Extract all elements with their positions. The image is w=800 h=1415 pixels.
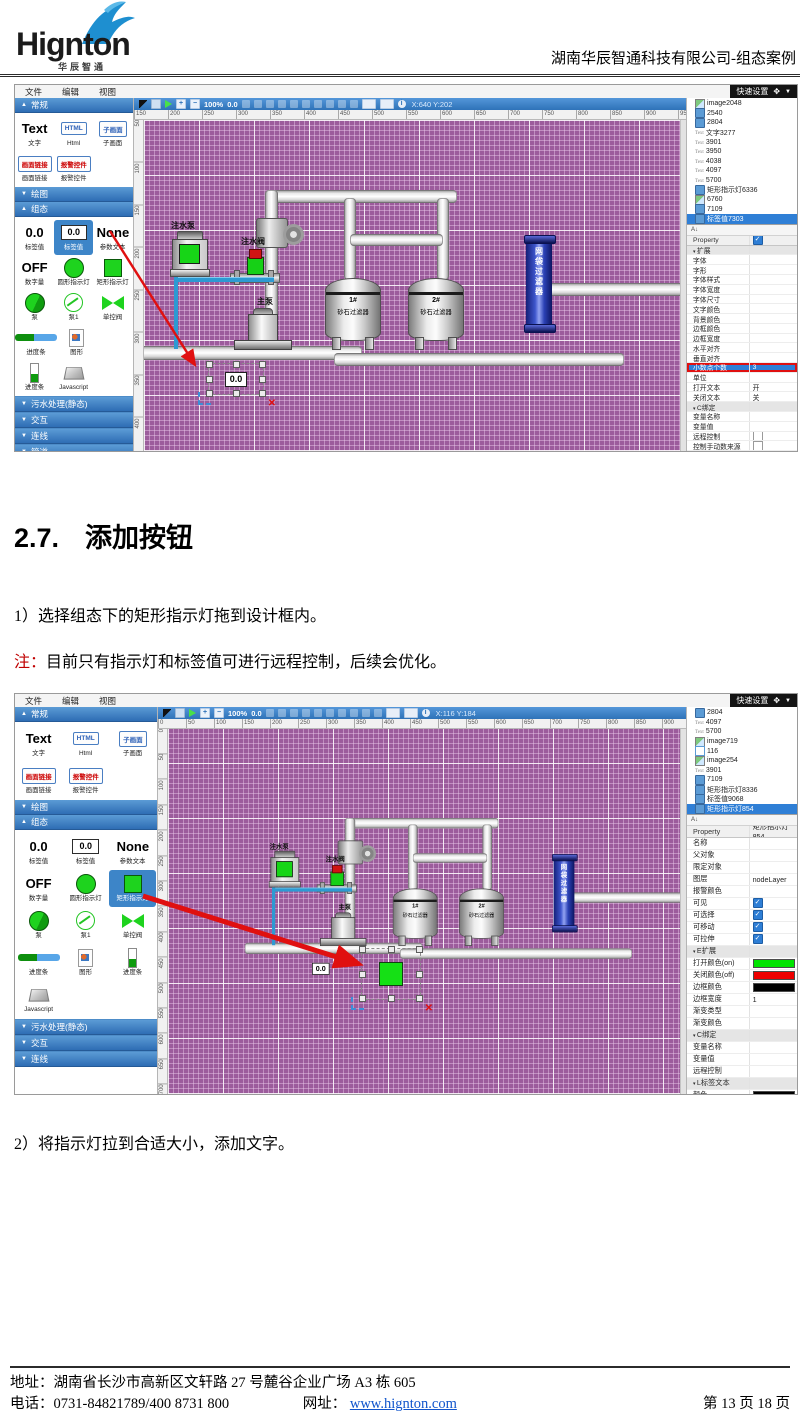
resize-handle[interactable]	[416, 995, 423, 1002]
tree-item[interactable]: 2804	[687, 708, 797, 718]
palette-item[interactable]: 泵	[15, 290, 54, 325]
property-value[interactable]	[749, 886, 797, 897]
property-value[interactable]	[749, 1006, 797, 1017]
palette-item[interactable]: 画面链接 画面链接	[15, 151, 54, 186]
property-value[interactable]	[749, 946, 797, 957]
widget-icon	[25, 293, 45, 313]
palette-item[interactable]: 画面链接 画面链接	[15, 762, 62, 799]
ungroup-icon[interactable]	[350, 100, 358, 108]
sort-icon[interactable]: A↓	[691, 817, 698, 823]
menu-item[interactable]: 编辑	[62, 86, 79, 98]
ruler-tick: 650	[158, 1059, 167, 1084]
menu-item[interactable]: 编辑	[62, 695, 79, 707]
tree-item[interactable]: 矩形指示灯854	[687, 804, 797, 814]
property-value[interactable]	[749, 970, 797, 981]
section-arrow-icon: ▼	[21, 1052, 27, 1066]
palette-item[interactable]: 单控阀	[109, 907, 156, 944]
ruler-tick: 950	[678, 110, 686, 119]
align-center-icon[interactable]	[254, 100, 262, 108]
property-value[interactable]	[749, 324, 797, 333]
tree-item[interactable]: 5700	[687, 176, 797, 186]
palette-item[interactable]: 泵	[15, 907, 62, 944]
tree-item[interactable]: 3901	[687, 766, 797, 776]
palette-item[interactable]: HTML Html	[62, 725, 109, 762]
hignton-logo: Hignton 华辰智通	[16, 2, 166, 72]
property-label: C绑定	[687, 1030, 749, 1040]
palette-item[interactable]: 图形	[57, 325, 96, 360]
property-row[interactable]: 父对象	[687, 850, 797, 862]
widget-palette-panel: ▲ 常规 Text 文字 HTML Html	[15, 707, 158, 1094]
tree-item[interactable]: 5700	[687, 727, 797, 737]
property-value[interactable]	[749, 334, 797, 343]
tree-item-icon	[695, 148, 704, 155]
menu-item[interactable]: 文件	[25, 695, 42, 707]
move-icon[interactable]: ✥	[773, 87, 780, 96]
palette-section-collapsed[interactable]: ▼ 连线	[15, 428, 133, 444]
sand-filter-1[interactable]: 1# 砂石过滤器	[325, 278, 381, 350]
property-row[interactable]: 边框颜色	[687, 982, 797, 994]
palette-item-label: Html	[56, 139, 92, 147]
align-top-icon[interactable]	[278, 100, 286, 108]
menu-item[interactable]: 视图	[99, 695, 116, 707]
sand-filter-2[interactable]: 2# 砂石过滤器	[459, 888, 504, 946]
property-row[interactable]: E扩展	[687, 946, 797, 958]
tree-item[interactable]: image2048	[687, 99, 797, 109]
canvas-toolbar: + − 100% 0.0 i X:6	[134, 98, 686, 110]
resize-handle[interactable]	[359, 946, 366, 953]
palette-item[interactable]: 圆形指示灯	[62, 870, 109, 907]
info-icon[interactable]: i	[398, 100, 406, 108]
palette-item[interactable]: Text 文字	[15, 725, 62, 762]
ruler-tick: 450	[158, 958, 167, 983]
pipe	[570, 892, 680, 902]
resize-handle[interactable]	[233, 390, 240, 397]
ruler-tick: 400	[158, 932, 167, 957]
property-value[interactable]	[749, 236, 797, 245]
palette-item[interactable]: 进度条	[15, 360, 54, 395]
widget-icon	[30, 363, 39, 383]
ruler-tick: 850	[634, 719, 662, 728]
zoom-in-icon[interactable]: +	[176, 99, 186, 109]
ruler-tick: 800	[606, 719, 634, 728]
property-row[interactable]: C绑定	[687, 1030, 797, 1042]
design-canvas[interactable]: 注水泵 注水阀 主泵	[168, 729, 680, 1094]
property-row[interactable]: 限定对象	[687, 862, 797, 874]
palette-section-collapsed[interactable]: ▼ 连线	[15, 1051, 157, 1067]
tree-item[interactable]: image254	[687, 756, 797, 766]
plant-diagram: 注水泵 注水阀 主泵	[248, 762, 680, 1028]
palette-item[interactable]: None 参数文本	[93, 220, 132, 255]
property-value[interactable]	[749, 441, 797, 450]
tree-item[interactable]: 7109	[687, 205, 797, 215]
property-value[interactable]	[749, 275, 797, 284]
tree-item-icon	[695, 737, 705, 747]
distribute-v-icon[interactable]	[350, 709, 358, 717]
align-top-icon[interactable]	[302, 709, 310, 717]
palette-item[interactable]: None 参数文本	[109, 833, 156, 870]
property-value[interactable]	[749, 838, 797, 849]
ruler-tick: 850	[610, 110, 644, 119]
tree-item-icon	[695, 756, 705, 766]
palette-item[interactable]: 报警控件 报警控件	[54, 151, 93, 186]
palette-item[interactable]: 进度条	[15, 944, 62, 981]
palette-item-label: 文字	[17, 139, 53, 147]
note-text: 注：目前只有指示灯和标签值可进行远程控制，后续会优化。	[14, 648, 446, 672]
widget-icon: 子画面	[99, 121, 127, 137]
chevron-down-icon[interactable]: ▼	[785, 698, 791, 704]
property-value[interactable]	[749, 246, 797, 255]
resize-handle[interactable]	[359, 995, 366, 1002]
quick-settings-bar[interactable]: 快速设置 ✥ ▼	[730, 85, 797, 98]
quick-settings-bar[interactable]: 快速设置 ✥ ▼	[730, 694, 797, 707]
selected-indicator-widget[interactable]: ✕	[361, 948, 421, 1000]
distribute-h-icon[interactable]	[338, 709, 346, 717]
resize-handle[interactable]	[416, 946, 423, 953]
property-value[interactable]: 3	[749, 363, 797, 372]
menu-item[interactable]: 文件	[25, 86, 42, 98]
property-label: 边框宽度	[687, 994, 749, 1004]
resize-handle[interactable]	[416, 971, 423, 978]
property-row[interactable]: 边框宽度 1	[687, 994, 797, 1006]
section-arrow-icon: ▲	[21, 202, 27, 216]
section-arrow-icon: ▼	[21, 1036, 27, 1050]
property-sort-bar[interactable]: A↓	[687, 814, 797, 826]
delete-icon[interactable]: ✕	[268, 398, 276, 409]
footer-website-link[interactable]: www.hignton.com	[350, 1396, 457, 1412]
palette-item[interactable]: 图形	[62, 944, 109, 981]
property-row[interactable]: 渐变颜色	[687, 1018, 797, 1030]
property-value[interactable]	[749, 265, 797, 274]
palette-item[interactable]: 泵1	[54, 290, 93, 325]
property-value[interactable]	[749, 922, 797, 933]
property-label: 颜色	[687, 1090, 749, 1094]
group-icon[interactable]	[338, 100, 346, 108]
align-middle-icon[interactable]	[290, 100, 298, 108]
property-value[interactable]	[749, 285, 797, 294]
cursor-tool-icon[interactable]	[139, 100, 147, 108]
align-center-icon[interactable]	[278, 709, 286, 717]
front-icon[interactable]	[386, 708, 400, 718]
chevron-down-icon[interactable]: ▼	[785, 89, 791, 95]
palette-item[interactable]: 进度条	[15, 325, 57, 360]
widget-icon: 报警控件	[69, 768, 103, 784]
widget-icon	[122, 914, 144, 928]
property-value[interactable]	[749, 432, 797, 441]
palette-item[interactable]: 0.0 标签值	[15, 833, 62, 870]
tag-value-box[interactable]: 0.0	[312, 962, 330, 974]
tree-item[interactable]: 116	[687, 746, 797, 756]
property-value[interactable]	[749, 422, 797, 431]
tree-item[interactable]: 4097	[687, 718, 797, 728]
align-right-icon[interactable]	[266, 100, 274, 108]
property-value[interactable]	[749, 1030, 797, 1041]
injection-pump[interactable]	[269, 851, 299, 891]
property-value[interactable]	[749, 982, 797, 993]
property-value[interactable]	[749, 1090, 797, 1094]
ruler-tick: 0	[158, 729, 167, 754]
palette-item[interactable]: 0.0 标签值	[15, 220, 54, 255]
align-bottom-icon[interactable]	[302, 100, 310, 108]
resize-handle[interactable]	[388, 946, 395, 953]
property-value[interactable]: 开	[749, 383, 797, 392]
palette-item[interactable]: 矩形指示灯	[109, 870, 156, 907]
resize-handle[interactable]	[206, 361, 213, 368]
property-value[interactable]	[749, 255, 797, 264]
widget-icon: HTML	[73, 732, 99, 745]
cursor-coordinates: X:116 Y:184	[436, 709, 476, 718]
palette-item[interactable]: OFF 数字量	[15, 255, 54, 290]
property-label: 打开文本	[687, 382, 749, 392]
tree-item[interactable]: 6760	[687, 195, 797, 205]
main-pump[interactable]	[320, 912, 365, 949]
widget-icon: Text	[22, 121, 48, 136]
tree-item[interactable]: 2540	[687, 109, 797, 119]
palette-item[interactable]: 0.0 标签值	[62, 833, 109, 870]
palette-item[interactable]: 报警控件 报警控件	[62, 762, 109, 799]
resize-handle[interactable]	[259, 361, 266, 368]
property-value[interactable]: 关	[749, 392, 797, 401]
bag-filter[interactable]: 网袋过滤器	[554, 856, 575, 930]
property-value[interactable]	[749, 412, 797, 421]
front-icon[interactable]	[362, 99, 376, 109]
zoom-out-icon[interactable]: −	[190, 99, 200, 109]
palette-section-zutai[interactable]: ▲ 组态	[15, 815, 157, 830]
property-label: 变量名称	[687, 1042, 749, 1052]
property-row[interactable]: 可见	[687, 898, 797, 910]
injection-pump[interactable]	[170, 231, 208, 281]
palette-item[interactable]: 单控阀	[93, 290, 132, 325]
palette-item[interactable]: 圆形指示灯	[54, 255, 93, 290]
palette-item[interactable]: 泵1	[62, 907, 109, 944]
tree-item[interactable]: 4097	[687, 166, 797, 176]
property-value[interactable]	[749, 898, 797, 909]
ruler-tick: 750	[542, 110, 576, 119]
property-value[interactable]	[749, 1042, 797, 1053]
widget-icon	[69, 329, 84, 347]
cursor-tool-icon[interactable]	[163, 709, 171, 717]
align-left-icon[interactable]	[266, 709, 274, 717]
ungroup-icon[interactable]	[374, 709, 382, 717]
main-pump[interactable]	[234, 308, 290, 354]
property-row[interactable]: 可拉伸	[687, 934, 797, 946]
tree-item[interactable]: 4038	[687, 157, 797, 167]
tree-item-icon	[695, 177, 704, 184]
property-value[interactable]	[749, 1018, 797, 1029]
property-table: Property Value 标识 矩形指示灯854	[687, 826, 797, 1094]
resize-handle[interactable]	[359, 971, 366, 978]
bag-filter[interactable]: 网袋过滤器	[526, 238, 552, 330]
property-row[interactable]: 关闭颜色(off)	[687, 970, 797, 982]
property-value[interactable]	[749, 1078, 797, 1089]
widget-icon	[102, 296, 124, 310]
resize-handle[interactable]	[259, 376, 266, 383]
widget-icon: 画面链接	[22, 768, 56, 784]
palette-item[interactable]: Javascript	[54, 360, 93, 395]
canvas-toolbar: + − 100% 0.0 i X:1	[158, 707, 686, 719]
ruler-tick: 700	[550, 719, 578, 728]
property-row[interactable]: 名称	[687, 838, 797, 850]
tag-value-box[interactable]: 0.0	[225, 372, 248, 387]
palette-section-collapsed[interactable]: ▼ 管道	[15, 444, 133, 451]
property-value[interactable]	[749, 304, 797, 313]
property-label: 可选择	[687, 910, 749, 920]
palette-section-draw[interactable]: ▼ 绘图	[15, 187, 133, 202]
property-row[interactable]: 可选择	[687, 910, 797, 922]
ruler-tick: 200	[158, 831, 167, 856]
property-row[interactable]: 报警颜色	[687, 886, 797, 898]
property-value[interactable]	[749, 314, 797, 323]
section-arrow-icon: ▲	[21, 815, 27, 829]
cursor-coordinates: X:640 Y:202	[412, 100, 453, 109]
palette-item-label: 图形	[59, 348, 95, 356]
angle-value: 0.0	[227, 100, 237, 109]
property-value[interactable]	[749, 343, 797, 352]
sand-filter-1[interactable]: 1# 砂石过滤器	[393, 888, 438, 946]
ruler-tick: 400	[304, 110, 338, 119]
tree-item[interactable]: 标签值7303	[687, 214, 797, 224]
property-row[interactable]: 图层 nodeLayer	[687, 874, 797, 886]
tree-item[interactable]: 3901	[687, 137, 797, 147]
align-left-icon[interactable]	[242, 100, 250, 108]
zoom-level: 100%	[228, 709, 247, 718]
tree-item[interactable]: 7109	[687, 775, 797, 785]
property-value[interactable]	[749, 862, 797, 873]
pipe	[350, 234, 443, 246]
property-value[interactable]	[749, 1066, 797, 1077]
palette-section-collapsed[interactable]: ▼ 交互	[15, 412, 133, 428]
property-value[interactable]	[749, 353, 797, 362]
property-row[interactable]: 变量值	[687, 1054, 797, 1066]
property-row[interactable]: 变量名称	[687, 1042, 797, 1054]
tree-item[interactable]: 标签值9068	[687, 794, 797, 804]
group-icon[interactable]	[362, 709, 370, 717]
info-icon[interactable]: i	[422, 709, 430, 717]
property-value[interactable]	[749, 958, 797, 969]
property-label: C绑定	[687, 402, 749, 412]
rect-indicator[interactable]	[379, 962, 403, 986]
palette-item-label: 参数文本	[111, 857, 154, 865]
palette-section-common[interactable]: ▲ 常规	[15, 707, 157, 722]
distribute-h-icon[interactable]	[314, 100, 322, 108]
palette-section-zutai[interactable]: ▲ 组态	[15, 202, 133, 217]
property-row[interactable]: 颜色	[687, 1090, 797, 1094]
back-icon[interactable]	[380, 99, 394, 109]
tree-item[interactable]: 2804	[687, 118, 797, 128]
save-icon[interactable]	[175, 708, 185, 718]
property-row[interactable]: 远程控制	[687, 1066, 797, 1078]
widget-icon: 子画面	[119, 731, 147, 747]
property-value[interactable]	[749, 1054, 797, 1065]
palette-section-draw[interactable]: ▼ 绘图	[15, 800, 157, 815]
resize-handle[interactable]	[206, 390, 213, 397]
tree-item-icon	[695, 129, 704, 136]
property-value[interactable]: 1	[749, 994, 797, 1005]
back-icon[interactable]	[404, 708, 418, 718]
property-value[interactable]: nodeLayer	[749, 874, 797, 885]
palette-item[interactable]: 0.0 标签值	[54, 220, 93, 255]
palette-item-label: 标签值	[17, 857, 60, 865]
delete-icon[interactable]: ✕	[425, 1003, 433, 1014]
sand-filter-2[interactable]: 2# 砂石过滤器	[408, 278, 464, 350]
tree-item-icon	[695, 719, 704, 726]
tag-widget[interactable]: 0.0	[299, 956, 342, 980]
palette-item[interactable]: Javascript	[15, 981, 62, 1018]
palette-item[interactable]: 子画面 子画面	[109, 725, 156, 762]
widget-icon	[63, 367, 84, 380]
tree-item[interactable]: image719	[687, 737, 797, 747]
align-right-icon[interactable]	[290, 709, 298, 717]
ruler-tick: 500	[372, 110, 406, 119]
design-canvas[interactable]: 注水泵 注水阀 主泵	[144, 120, 680, 451]
ruler-tick: 750	[578, 719, 606, 728]
resize-handle[interactable]	[259, 390, 266, 397]
widget-icon: Text	[26, 731, 52, 746]
distribute-v-icon[interactable]	[326, 100, 334, 108]
property-row[interactable]: 打开颜色(on)	[687, 958, 797, 970]
property-value[interactable]	[749, 295, 797, 304]
palette-section-collapsed[interactable]: ▼ 交互	[15, 1035, 157, 1051]
property-value[interactable]	[749, 373, 797, 382]
palette-item[interactable]: 子画面 子画面	[93, 116, 132, 151]
palette-item-label: 文字	[17, 749, 60, 757]
property-row[interactable]: 可移动	[687, 922, 797, 934]
tree-item[interactable]: 矩形指示灯8336	[687, 785, 797, 795]
property-row[interactable]: 渐变类型	[687, 1006, 797, 1018]
tree-item[interactable]: 文字3277	[687, 128, 797, 138]
palette-item[interactable]: 矩形指示灯	[93, 255, 132, 290]
collapsed-sections: ▼ 污水处理(静态) ▼ 交互 ▼ 连线	[15, 1019, 157, 1067]
zoom-in-icon[interactable]: +	[200, 708, 210, 718]
palette-section-collapsed[interactable]: ▼ 污水处理(静态)	[15, 1019, 157, 1035]
property-row[interactable]: 控制手动数来源	[687, 441, 797, 451]
property-label: 图层	[687, 874, 749, 884]
palette-item[interactable]: OFF 数字量	[15, 870, 62, 907]
resize-handle[interactable]	[388, 995, 395, 1002]
property-row[interactable]: L标签文本	[687, 1078, 797, 1090]
palette-section-collapsed[interactable]: ▼ 污水处理(静态)	[15, 396, 133, 412]
property-value[interactable]	[749, 850, 797, 861]
align-middle-icon[interactable]	[314, 709, 322, 717]
property-label: 渐变类型	[687, 1006, 749, 1016]
palette-item-label: 子画面	[95, 139, 131, 147]
property-sort-bar[interactable]: A↓	[687, 224, 797, 236]
run-icon[interactable]	[189, 709, 196, 717]
zoom-out-icon[interactable]: −	[214, 708, 224, 718]
palette-item[interactable]: Text 文字	[15, 116, 54, 151]
move-icon[interactable]: ✥	[773, 696, 780, 705]
tree-item[interactable]: 3950	[687, 147, 797, 157]
property-value[interactable]	[749, 934, 797, 945]
run-icon[interactable]	[165, 100, 172, 108]
palette-section-common[interactable]: ▲ 常规	[15, 98, 133, 113]
resize-handle[interactable]	[233, 361, 240, 368]
color-swatch	[753, 971, 796, 980]
tree-item[interactable]: 矩形指示灯6336	[687, 185, 797, 195]
resize-handle[interactable]	[206, 376, 213, 383]
menu-item[interactable]: 视图	[99, 86, 116, 98]
selected-tag-widget[interactable]: 0.0 ✕	[208, 363, 264, 395]
property-value[interactable]: 矩形指示灯854	[749, 826, 797, 837]
property-label: 垂直对齐	[687, 353, 749, 363]
property-label: 边框宽度	[687, 333, 749, 343]
property-value[interactable]	[749, 910, 797, 921]
align-bottom-icon[interactable]	[326, 709, 334, 717]
property-value[interactable]	[749, 402, 797, 411]
palette-item[interactable]: 进度条	[109, 944, 156, 981]
save-icon[interactable]	[151, 99, 161, 109]
sort-icon[interactable]: A↓	[691, 227, 698, 233]
palette-item[interactable]: HTML Html	[54, 116, 93, 151]
